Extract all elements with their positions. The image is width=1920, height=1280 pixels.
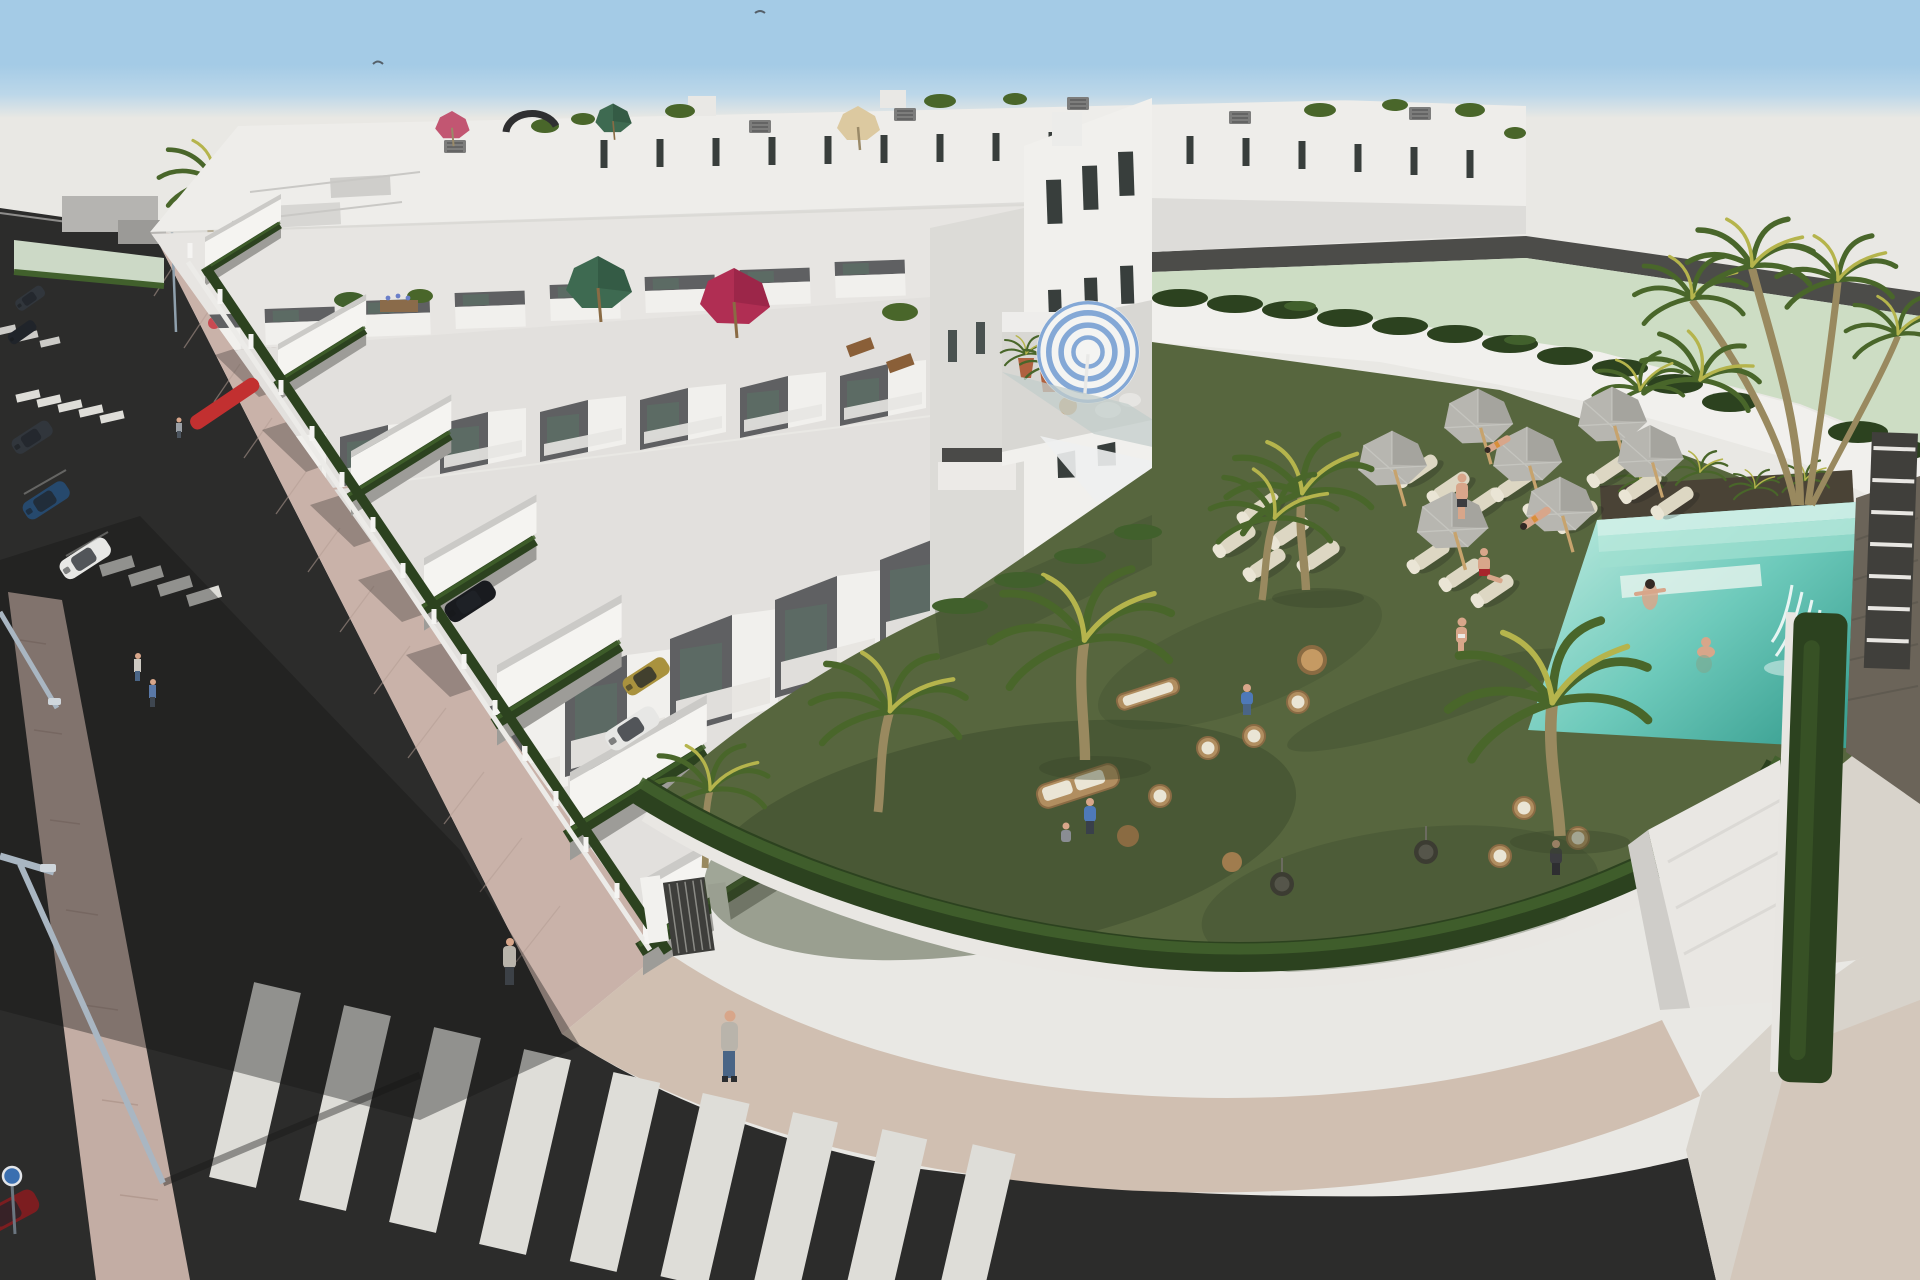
architectural-render: Aerial 3D architectural rendering of a m…	[0, 0, 1920, 1280]
stump-table	[1117, 825, 1139, 847]
sky	[0, 0, 1920, 118]
stump-table-top	[1301, 649, 1323, 671]
roof-bulkhead	[880, 90, 906, 108]
lamp-head	[40, 864, 56, 872]
white-slat-wall	[1864, 432, 1918, 669]
balcony-parapet	[938, 462, 1016, 490]
lamp-head	[48, 698, 61, 705]
render-canvas: Aerial 3D architectural rendering of a m…	[0, 0, 1920, 1280]
stump-table	[1222, 852, 1242, 872]
chimney	[1052, 112, 1082, 146]
